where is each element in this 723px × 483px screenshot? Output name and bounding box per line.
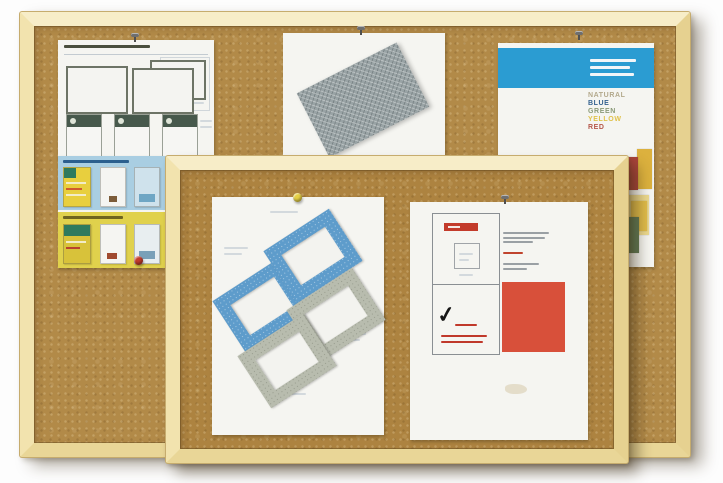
brochure-thumbnail xyxy=(63,224,91,264)
spec-sheet-paper xyxy=(58,40,214,158)
red-label-chip xyxy=(444,223,478,231)
yellow-pushpin xyxy=(293,193,302,202)
flyer-sheet-paper xyxy=(58,156,178,268)
color-word-blue: BLUE xyxy=(588,100,609,108)
metal-pin xyxy=(357,26,365,35)
color-word-natural: NATURAL xyxy=(588,92,626,100)
metal-pin xyxy=(131,33,139,42)
grey-mesh-swatch xyxy=(297,43,429,158)
flyer-yellow-band xyxy=(58,212,178,268)
faint-logo-mark xyxy=(505,384,527,394)
checkmark-glyph: ✓ xyxy=(435,301,457,329)
spec-sheet-title-line xyxy=(64,45,150,48)
rule-line xyxy=(64,54,208,55)
red-square xyxy=(502,282,565,352)
metal-pin xyxy=(501,195,509,204)
mini-box-diagram xyxy=(454,243,480,269)
board-outline-diagram-right xyxy=(132,68,194,114)
brochure-thumbnail xyxy=(100,167,126,207)
card-logo-dot xyxy=(118,118,124,124)
swatch-sheet-paper xyxy=(283,33,445,165)
flyer-blue-band xyxy=(58,156,178,210)
color-word-yellow: YELLOW xyxy=(588,116,622,124)
color-word-green: GREEN xyxy=(588,108,616,116)
color-sheet-header xyxy=(498,48,654,88)
grid-sheet-paper: ✓ xyxy=(410,202,588,440)
grid-diagram: ✓ xyxy=(432,213,500,355)
card-thumbnail xyxy=(162,114,198,158)
color-word-red: RED xyxy=(588,124,605,132)
red-pushpin xyxy=(134,256,143,265)
card-thumbnail xyxy=(114,114,150,158)
card-thumbnail xyxy=(66,114,102,158)
color-chip-deep-yellow xyxy=(637,149,652,189)
brochure-thumbnail xyxy=(63,167,91,207)
frames-sheet-paper xyxy=(212,197,384,435)
board-outline-diagram-left xyxy=(66,66,128,114)
color-chip-red xyxy=(627,157,638,190)
metal-pin xyxy=(575,31,583,40)
brochure-thumbnail xyxy=(134,167,160,207)
card-logo-dot xyxy=(70,118,76,124)
product-photo-scene: NATURAL BLUE GREEN YELLOW RED xyxy=(0,0,723,483)
card-logo-dot xyxy=(166,118,172,124)
brochure-thumbnail xyxy=(100,224,126,264)
